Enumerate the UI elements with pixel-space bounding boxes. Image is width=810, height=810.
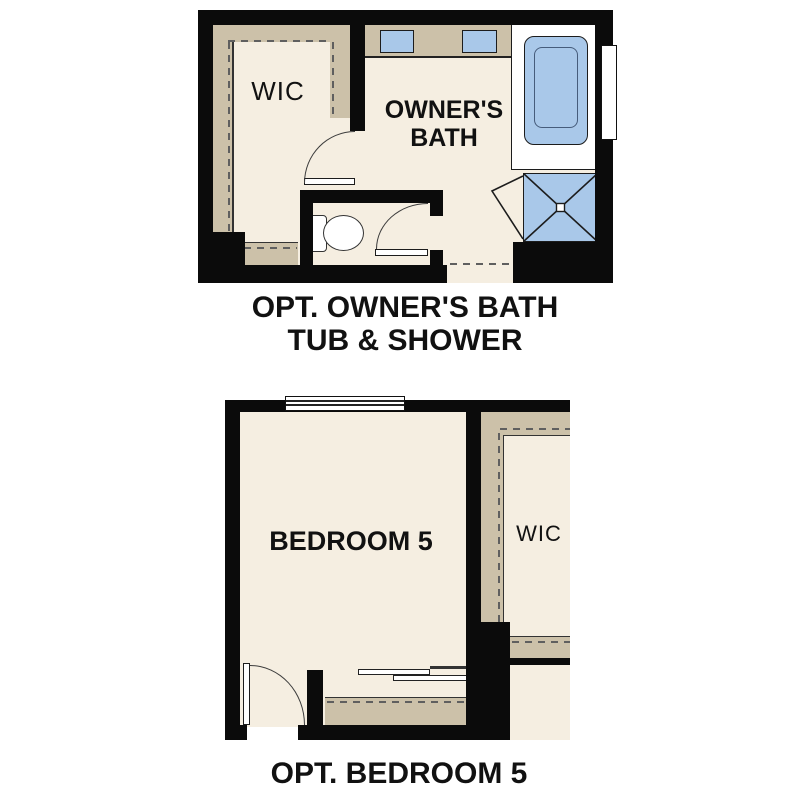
window-mullion-line-1 [286, 400, 404, 402]
wall-corner-block [466, 622, 510, 740]
wall-bottom [198, 265, 447, 283]
wall-bottom [298, 725, 472, 740]
bedroom-door-leaf [243, 663, 250, 725]
wall-wic-divider [466, 412, 481, 622]
wic-shelf-dash-top [500, 428, 570, 430]
closet-wall-stub [307, 670, 323, 740]
toilet-room-wall-left [300, 190, 313, 283]
floorplan-page: WIC OWNER'S BATH OPT. OWNER'S BATH TUB &… [0, 0, 810, 810]
wall-wic-divider [350, 10, 365, 131]
owners-bath-label-line1: OWNER'S [385, 96, 503, 124]
bath-window [601, 45, 617, 140]
toilet-room-wall-top [300, 190, 443, 203]
adjacent-room-wall [508, 658, 570, 665]
wic-shelf-dash-left [498, 433, 500, 623]
wic-shelf-dash-left [228, 42, 230, 242]
bath-entry-dash [450, 263, 515, 265]
wic-shelf-dash-bottom [244, 247, 297, 249]
vanity-sink-right [462, 30, 497, 53]
owners-bath-room-label: OWNER'S BATH [385, 96, 503, 152]
vanity-sink-left [380, 30, 414, 53]
owners-bath-caption-line1: OPT. OWNER'S BATH [252, 291, 559, 324]
window-mullion-line-2 [286, 404, 404, 406]
adjacent-room-floor [508, 665, 570, 740]
wall-top [198, 10, 613, 25]
bedroom-room-label: BEDROOM 5 [269, 526, 433, 557]
bedroom-window [285, 396, 405, 411]
owners-bath-caption-line2: TUB & SHOWER [252, 324, 559, 357]
bathtub-inner-line [534, 47, 578, 128]
wic-shelf-edge-line [232, 42, 234, 242]
wall-below-shower [513, 242, 613, 283]
bath-entry-floor [443, 263, 517, 283]
wic-room-label: WIC [251, 76, 305, 107]
owners-bath-caption: OPT. OWNER'S BATH TUB & SHOWER [252, 291, 559, 357]
bedroom-caption: OPT. BEDROOM 5 [271, 757, 528, 790]
wic-shelf-dash-top [228, 40, 332, 42]
wall-left [225, 400, 240, 740]
wic-room-label: WIC [516, 521, 562, 547]
toilet-door-leaf [375, 249, 428, 256]
shower-x-pattern [523, 173, 598, 242]
wic-shelf-dash-right [332, 42, 334, 116]
wall-bottom-left [225, 725, 247, 740]
toilet-room-wall-right-upper [430, 190, 443, 216]
wic-shelf-top [481, 412, 570, 435]
owners-bath-label-line2: BATH [385, 124, 503, 152]
wic-shelf-dash-bottom [512, 641, 570, 643]
shower-door [487, 172, 527, 242]
toilet-room-wall-right-lower [430, 250, 443, 283]
toilet-bowl [323, 215, 364, 251]
closet-bypass-door-2 [393, 675, 472, 681]
closet-shelf-dash [327, 701, 466, 703]
